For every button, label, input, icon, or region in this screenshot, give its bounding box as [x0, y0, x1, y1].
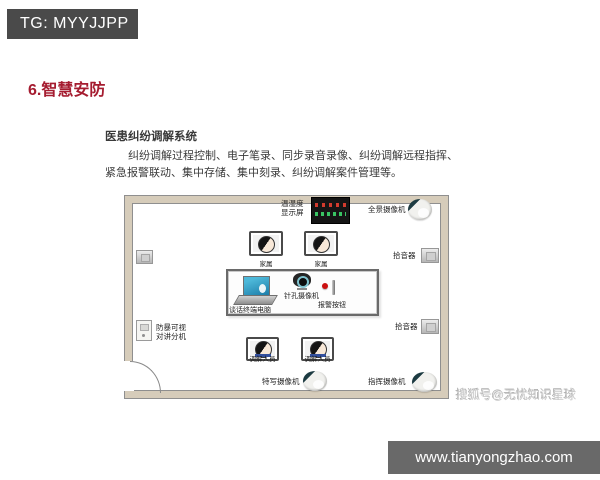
led-panel-icon [311, 197, 350, 224]
person-icon-family-2 [313, 236, 330, 253]
slide-page: TG: MYYJJPP 6.智慧安防 医患纠纷调解系统 纠纷调解过程控制、电子笔… [0, 0, 600, 480]
pickup-label-bottom: 拾音器 [395, 322, 418, 331]
intercom-label-line2: 对讲分机 [156, 332, 186, 341]
led-row-green [315, 212, 346, 216]
dome-camera-icon-panoramic [408, 199, 432, 220]
mediator-label-1: 调解人员 [246, 353, 279, 363]
laptop-icon-base [233, 295, 278, 305]
led-row-red [315, 203, 346, 207]
pinhole-camera-label: 针孔摄像机 [284, 292, 319, 301]
chair-family-2 [304, 231, 338, 256]
alarm-button-label: 报警按钮 [318, 301, 346, 310]
intercom-panel-icon [136, 320, 152, 341]
dome-camera-icon-closeup [303, 371, 327, 391]
speaker-icon-pickup-top [421, 248, 439, 263]
footer-url-bar: www.tianyongzhao.com [388, 441, 600, 474]
tg-badge: TG: MYYJJPP [7, 9, 138, 39]
intercom-label: 防暴可视 对讲分机 [156, 323, 186, 341]
command-camera-label: 指挥摄像机 [368, 377, 406, 386]
pinhole-camera-icon [293, 273, 311, 287]
alarm-button-icon [322, 283, 328, 289]
person-icon-family-1 [258, 236, 275, 253]
pickup-label-top: 拾音器 [393, 251, 416, 260]
laptop-icon-screen [243, 276, 270, 297]
panoramic-camera-label: 全景摄像机 [368, 205, 406, 214]
alarm-button-icon-stem [332, 280, 335, 295]
speaker-icon-pickup-bottom [421, 319, 439, 334]
terminal-pc-label: 谈话终端电脑 [229, 306, 271, 315]
temp-display-label-line1: 温湿度 [281, 199, 304, 208]
family-label-1: 家属 [249, 258, 283, 268]
chair-family-1 [249, 231, 283, 256]
watermark: 搜狐号@无忧知识星球 [456, 386, 576, 403]
family-label-2: 家属 [304, 258, 338, 268]
dome-camera-icon-command [412, 372, 437, 392]
page-title: 6.智慧安防 [28, 76, 105, 100]
speaker-icon-left [136, 250, 153, 264]
closeup-camera-label: 特写摄像机 [262, 377, 300, 386]
temp-display-label-line2: 显示屏 [281, 208, 304, 217]
description-line-1: 纠纷调解过程控制、电子笔录、同步录音录像、纠纷调解远程指挥、 [128, 147, 458, 163]
mediator-label-2: 调解人员 [301, 353, 334, 363]
description-line-2: 紧急报警联动、集中存储、集中刻录、纠纷调解案件管理等。 [105, 164, 402, 180]
intercom-label-line1: 防暴可视 [156, 323, 186, 332]
system-title: 医患纠纷调解系统 [105, 128, 197, 144]
temp-display-label: 温湿度 显示屏 [281, 199, 304, 217]
